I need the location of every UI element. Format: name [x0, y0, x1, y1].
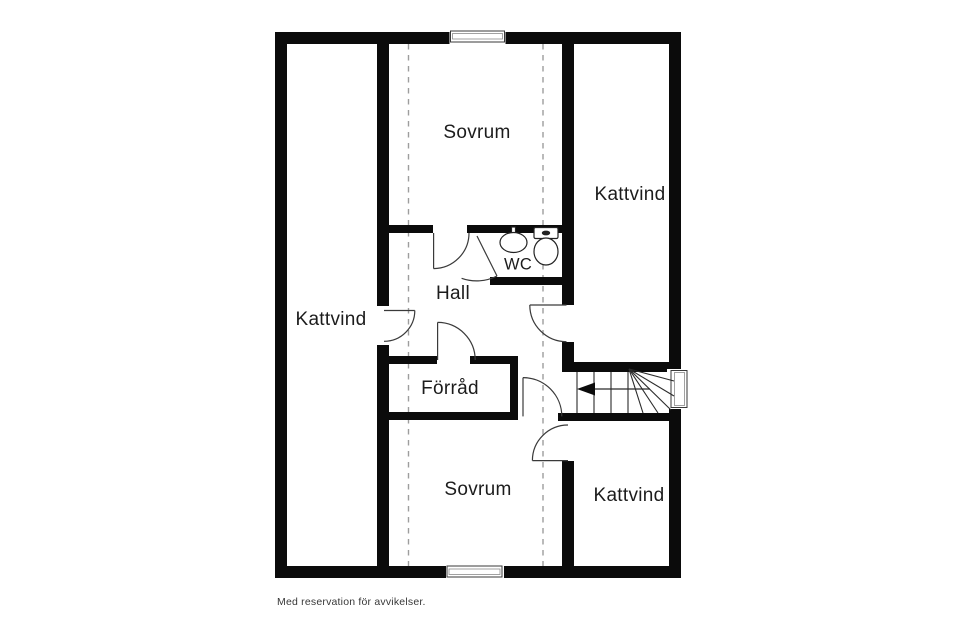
wall-left-kattvind-upper	[377, 44, 389, 306]
wall-right-column-upper	[562, 44, 574, 305]
doors	[384, 233, 568, 461]
staircase	[577, 369, 674, 413]
window-top-icon	[450, 30, 506, 46]
wall-sovrum-hall-left	[389, 225, 433, 233]
room-label-kattvind-top-right: Kattvind	[594, 184, 665, 206]
door-kattvind-bottom-right	[532, 425, 568, 461]
wall-right-column-lower	[562, 461, 574, 566]
wall-kattvind-tr-bottom	[562, 362, 681, 372]
window-bottom-icon	[446, 564, 504, 580]
wall-left-kattvind-lower	[377, 345, 389, 566]
floorplan-canvas: Sovrum Kattvind Kattvind Hall WC Förråd …	[0, 0, 960, 640]
room-label-kattvind-left: Kattvind	[295, 309, 366, 331]
disclaimer-text: Med reservation för avvikelser.	[277, 596, 426, 608]
door-kattvind-left	[384, 311, 415, 342]
room-label-hall: Hall	[436, 283, 470, 305]
room-label-wc: WC	[504, 256, 532, 275]
outer-wall-right	[669, 32, 681, 578]
door-sovrum-top	[434, 233, 469, 269]
room-label-forrad: Förråd	[421, 378, 479, 400]
wall-forrad-top-left	[389, 356, 437, 364]
wall-stairs-bottom	[558, 413, 681, 421]
toilet-icon	[534, 228, 558, 266]
room-label-sovrum-top: Sovrum	[443, 122, 510, 144]
floorplan-drawing	[0, 0, 960, 640]
wall-forrad-bottom	[377, 412, 518, 420]
outer-wall-left	[275, 32, 287, 578]
window-right-stairs-icon	[667, 369, 689, 409]
room-label-sovrum-bottom: Sovrum	[444, 479, 511, 501]
wall-forrad-right	[510, 356, 518, 420]
wall-wc-bottom	[490, 277, 562, 285]
room-label-kattvind-bottom-right: Kattvind	[593, 485, 664, 507]
door-forrad	[438, 322, 476, 360]
door-wc	[462, 236, 497, 281]
door-kattvind-top-right	[530, 305, 567, 342]
